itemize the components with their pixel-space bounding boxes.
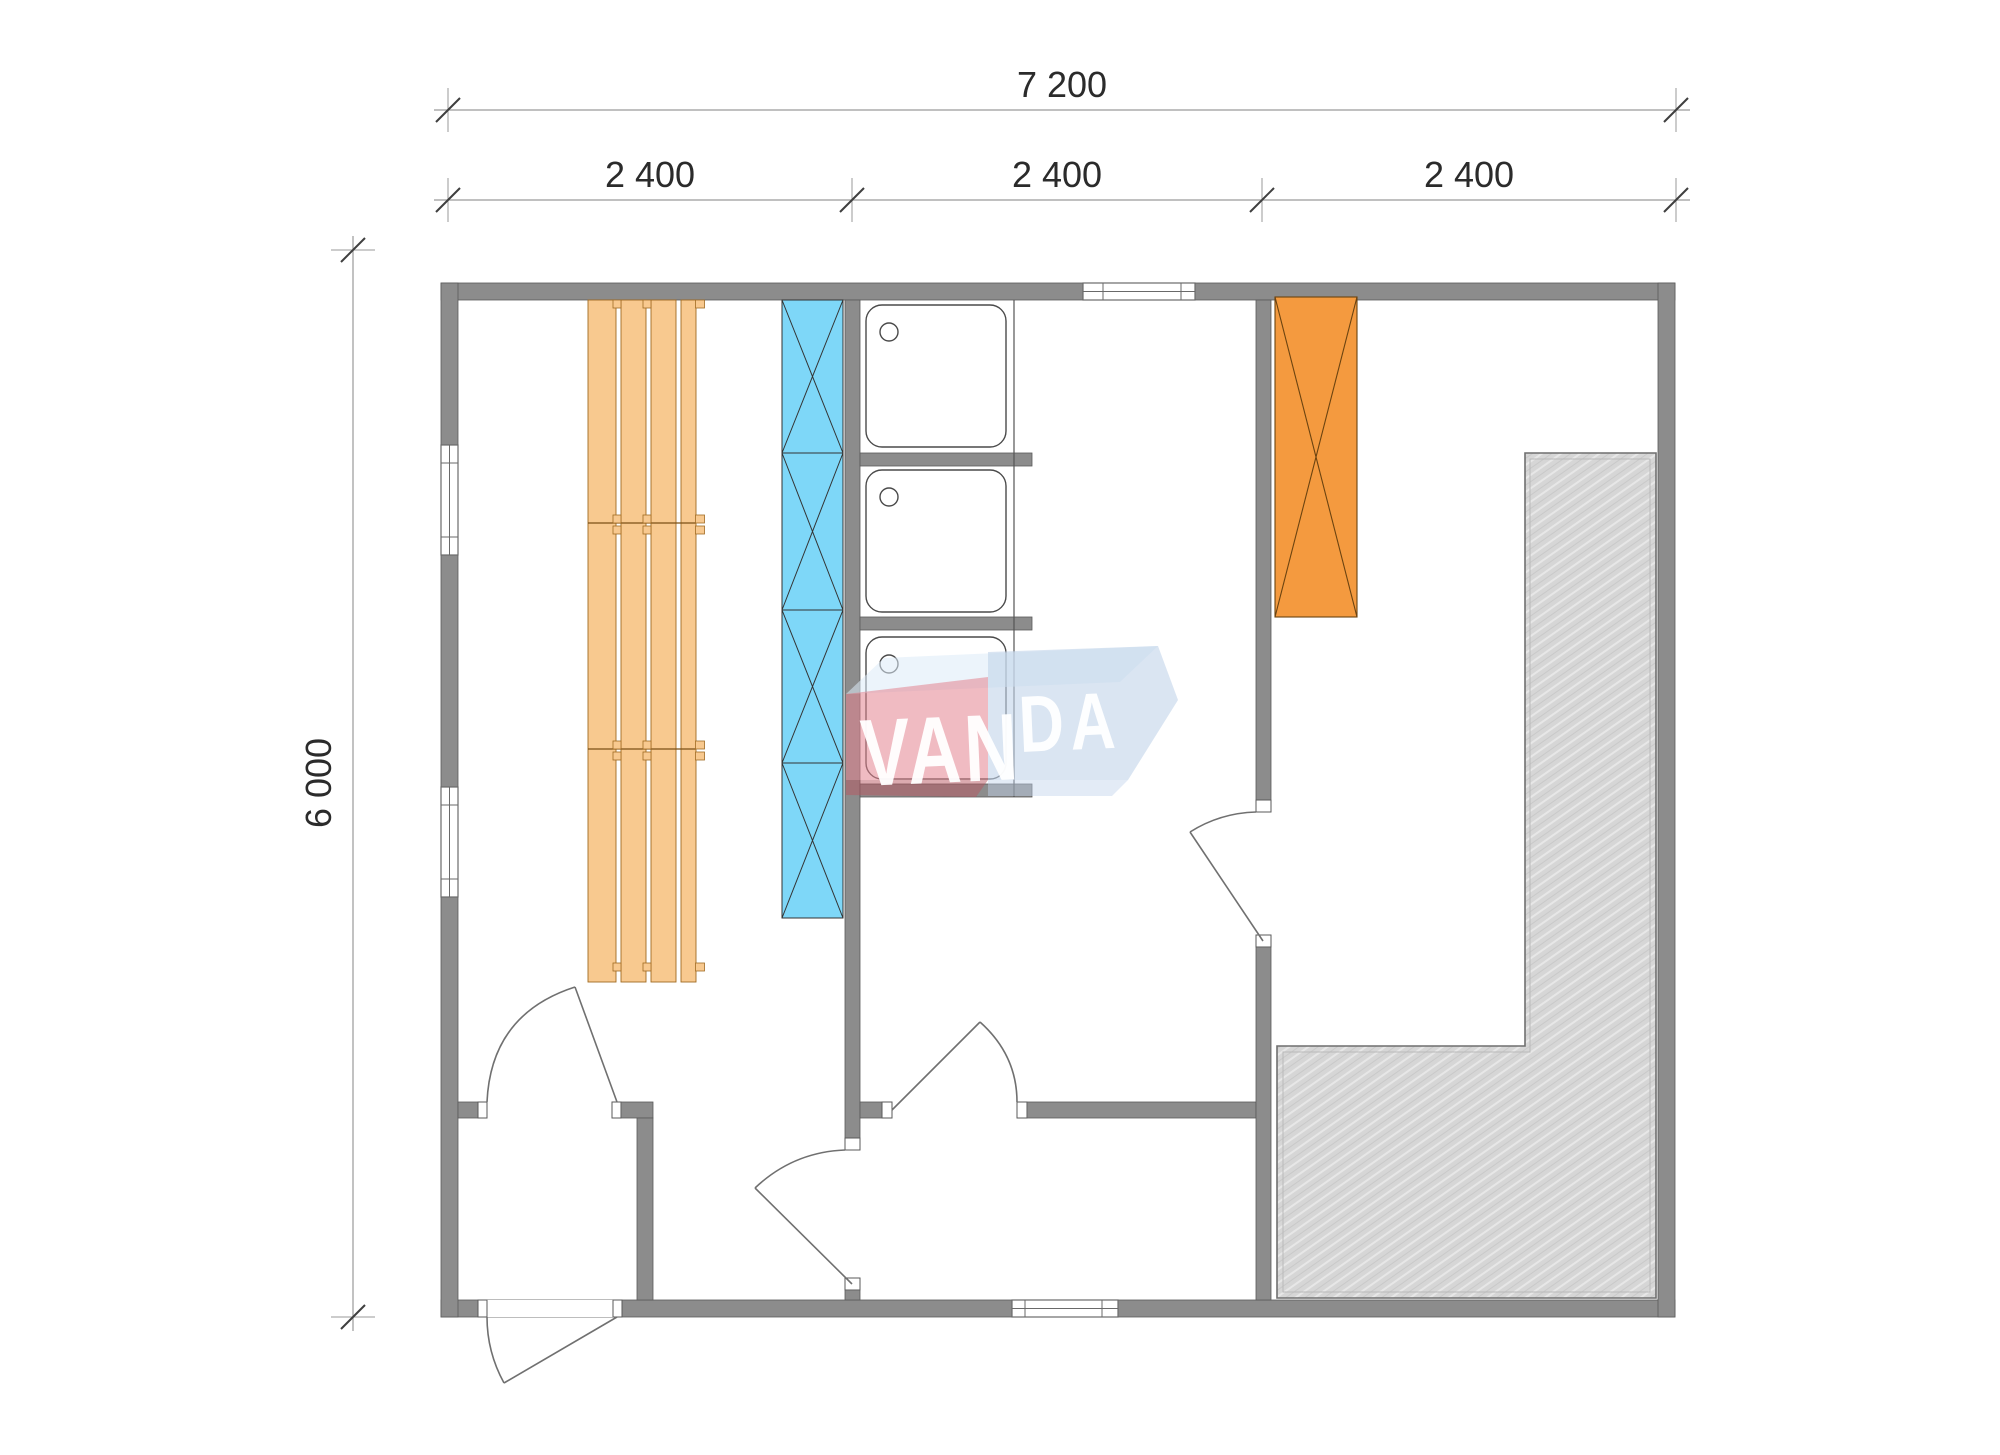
door-jamb (1256, 800, 1271, 812)
door-jamb (1256, 935, 1271, 947)
window-top (1083, 283, 1195, 300)
wall-vestibule-side (637, 1118, 653, 1300)
shower-partition-2 (860, 617, 1032, 630)
door-jamb (845, 1138, 860, 1150)
door-vestibule (487, 987, 617, 1102)
dimension-label-total-width: 7 200 (1017, 64, 1107, 105)
dimension-label-module-3: 2 400 (1424, 154, 1514, 195)
wall-exterior-top (441, 283, 1675, 300)
floor-plan-drawing: 7 200 2 400 2 400 2 400 6 000 (0, 0, 2000, 1450)
watermark-text-left: VAN (858, 694, 1023, 807)
wall-washroom-lounge (1256, 300, 1271, 800)
door-entrance (478, 1300, 622, 1383)
sauna-benches (588, 300, 705, 982)
window-bottom (1012, 1300, 1118, 1317)
wall-exterior-right (1658, 283, 1675, 1317)
vanda-watermark: VAN DA (846, 646, 1178, 807)
floor-plan-page: 7 200 2 400 2 400 2 400 6 000 (0, 0, 2000, 1450)
window-left-lower (441, 787, 458, 897)
watermark-text-right: DA (1017, 676, 1123, 770)
shower-drain-2 (880, 488, 898, 506)
dimension-label-height: 6 000 (298, 738, 339, 828)
dimension-label-module-1: 2 400 (605, 154, 695, 195)
sauna-heater (782, 300, 843, 918)
door-washroom (892, 1022, 1017, 1110)
window-left-upper (441, 445, 458, 555)
door-sauna (755, 1150, 852, 1284)
storage-unit (1275, 297, 1357, 617)
door-lounge (1190, 812, 1263, 941)
shower-partition-1 (860, 453, 1032, 466)
dimension-total-width: 7 200 (434, 64, 1690, 132)
dimension-height: 6 000 (298, 236, 375, 1331)
door-jamb (882, 1102, 892, 1118)
dimension-modules: 2 400 2 400 2 400 (434, 154, 1690, 222)
door-jamb (612, 1102, 621, 1118)
door-jamb (478, 1102, 487, 1118)
dimension-label-module-2: 2 400 (1012, 154, 1102, 195)
shower-drain-1 (880, 323, 898, 341)
wall-vestibule-top (458, 1102, 478, 1118)
door-jamb (1017, 1102, 1027, 1118)
wall-hall-washroom (1027, 1102, 1256, 1118)
